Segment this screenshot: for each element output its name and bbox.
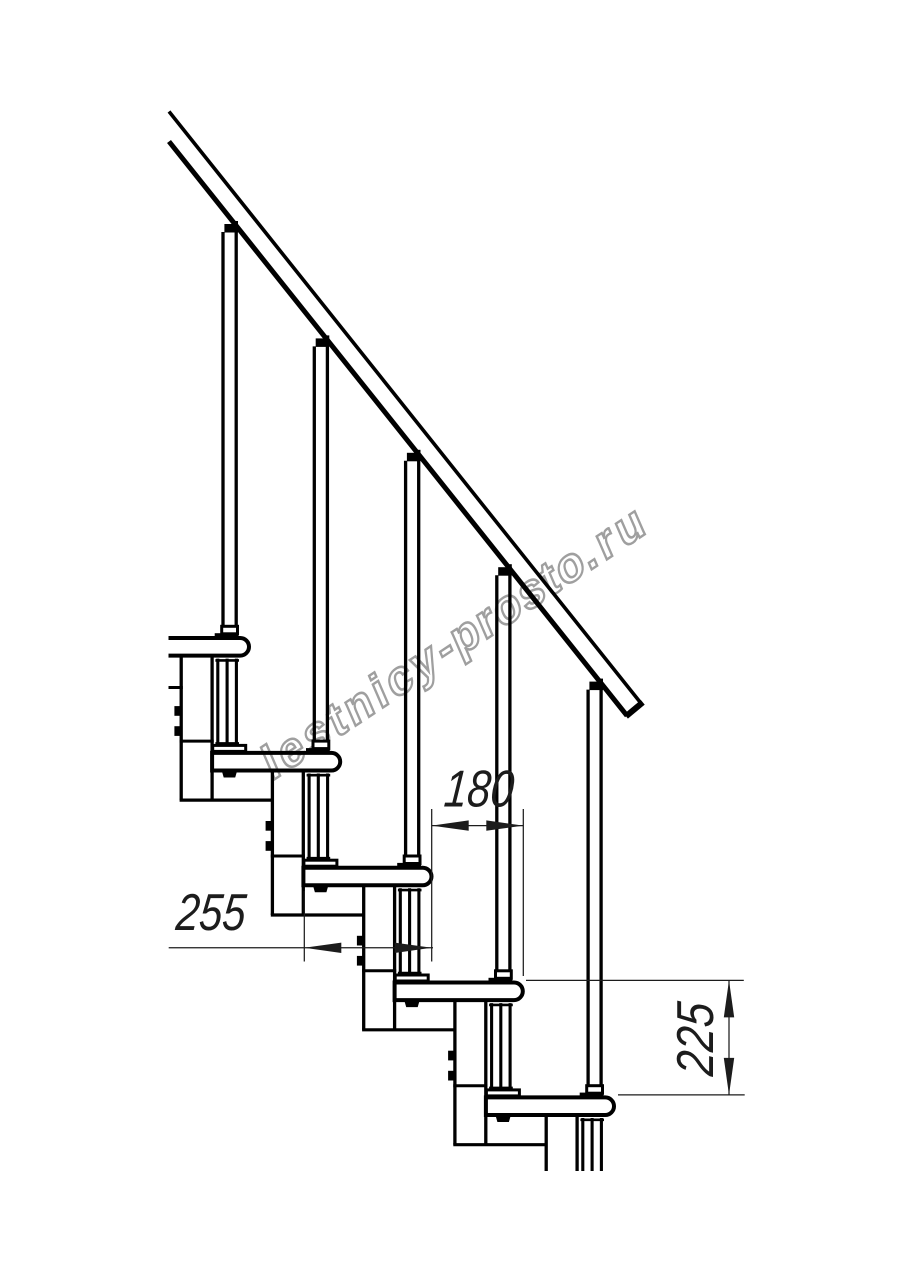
svg-text:225: 225 bbox=[667, 1000, 725, 1079]
svg-text:255: 255 bbox=[173, 884, 249, 942]
svg-text:180: 180 bbox=[442, 760, 517, 818]
